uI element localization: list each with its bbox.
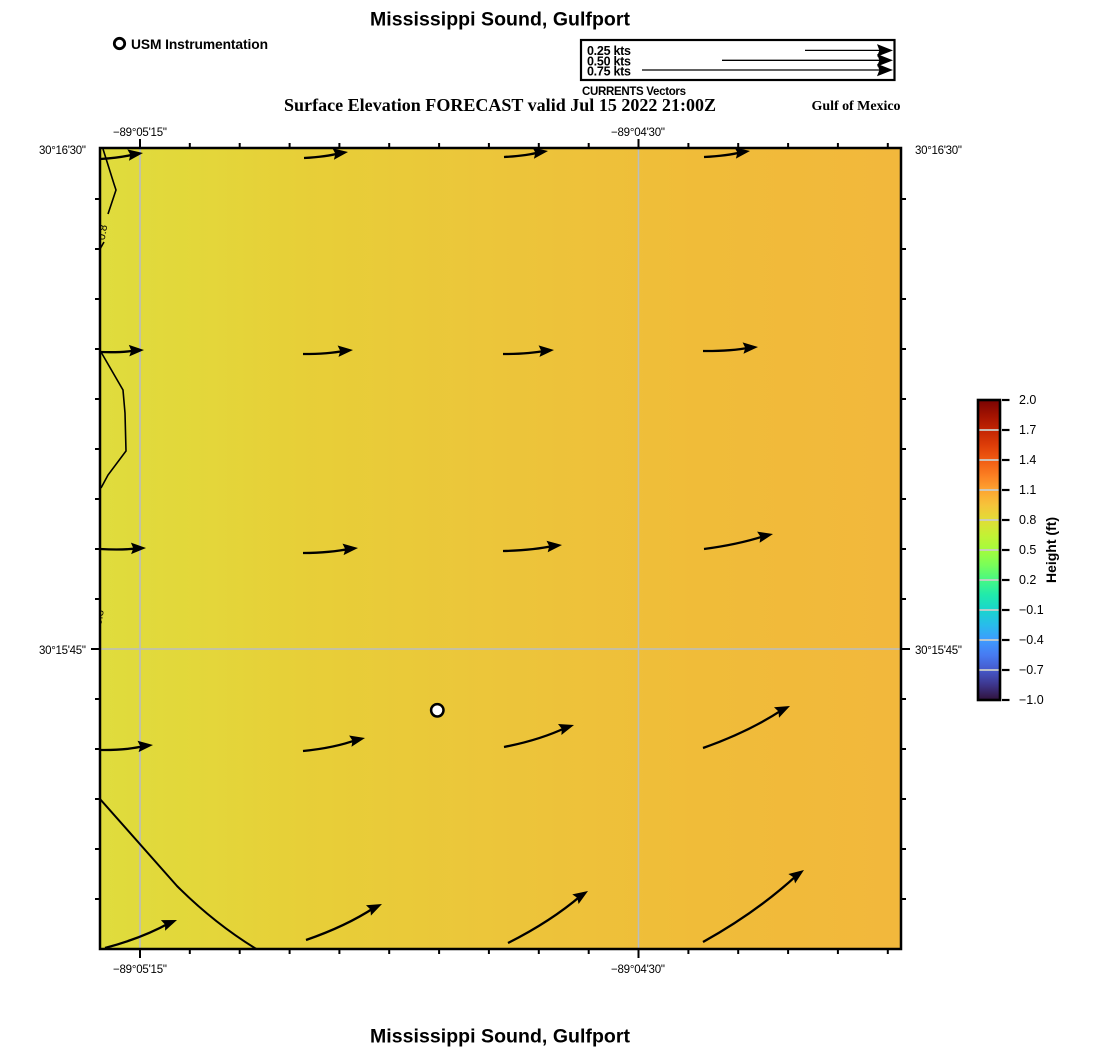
svg-text:Gulf of Mexico: Gulf of Mexico [812,99,901,114]
svg-text:30°15'45": 30°15'45" [39,645,86,657]
svg-text:−89°04'30": −89°04'30" [611,964,665,976]
svg-text:−0.1: −0.1 [1019,603,1044,617]
svg-text:30°15'45": 30°15'45" [915,645,962,657]
svg-text:Mississippi Sound, Gulfport: Mississippi Sound, Gulfport [370,9,631,31]
svg-text:−89°04'30": −89°04'30" [611,127,665,139]
svg-text:1.4: 1.4 [1019,453,1036,467]
svg-text:1.7: 1.7 [1019,423,1036,437]
svg-text:2.0: 2.0 [1019,393,1036,407]
svg-text:−0.4: −0.4 [1019,633,1044,647]
svg-text:0.2: 0.2 [1019,573,1036,587]
svg-text:0.8: 0.8 [1019,513,1036,527]
svg-text:−89°05'15": −89°05'15" [113,964,167,976]
svg-text:0.75 kts: 0.75 kts [587,65,631,79]
svg-text:−0.7: −0.7 [1019,663,1044,677]
svg-text:30°16'30": 30°16'30" [915,145,962,157]
svg-text:0.5: 0.5 [1019,543,1036,557]
svg-text:USM Instrumentation: USM Instrumentation [131,37,268,52]
svg-text:Surface Elevation FORECAST val: Surface Elevation FORECAST valid Jul 15 … [284,95,716,115]
svg-text:−89°05'15": −89°05'15" [113,127,167,139]
svg-text:30°16'30": 30°16'30" [39,145,86,157]
svg-text:−1.0: −1.0 [1019,693,1044,707]
svg-text:1.1: 1.1 [1019,483,1036,497]
svg-text:Height (ft): Height (ft) [1043,517,1059,583]
svg-text:Mississippi Sound, Gulfport: Mississippi Sound, Gulfport [370,1026,631,1048]
